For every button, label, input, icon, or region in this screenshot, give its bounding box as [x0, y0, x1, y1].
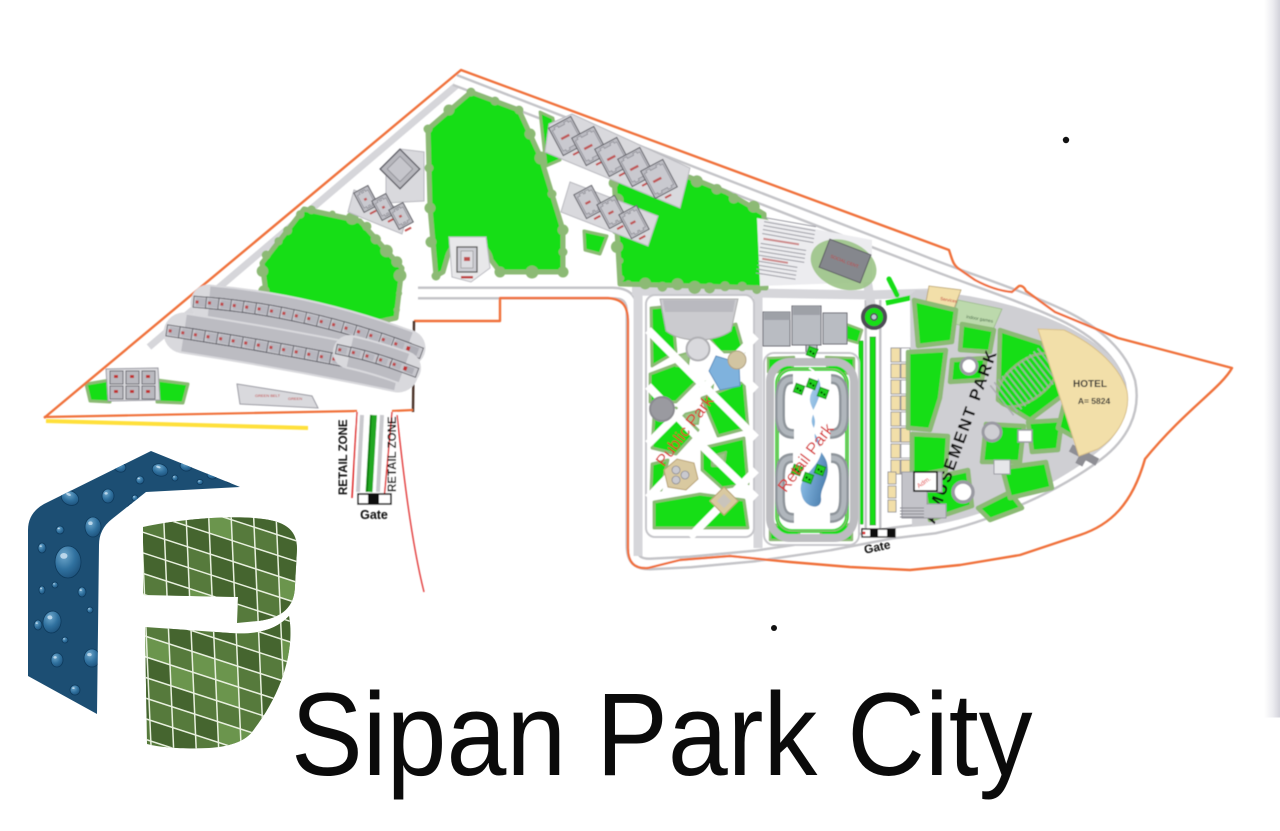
- svg-text:RETAIL ZONE: RETAIL ZONE: [387, 416, 399, 492]
- svg-text:HOTEL: HOTEL: [1073, 379, 1107, 390]
- svg-text:Gate: Gate: [360, 508, 388, 522]
- svg-text:RETAIL ZONE: RETAIL ZONE: [338, 419, 350, 495]
- svg-text:Sipan Park City: Sipan Park City: [291, 668, 1033, 800]
- svg-text:GREEN BELT: GREEN BELT: [255, 393, 281, 398]
- svg-text:GREEN: GREEN: [288, 396, 302, 401]
- svg-text:A= 5824: A= 5824: [1078, 396, 1111, 406]
